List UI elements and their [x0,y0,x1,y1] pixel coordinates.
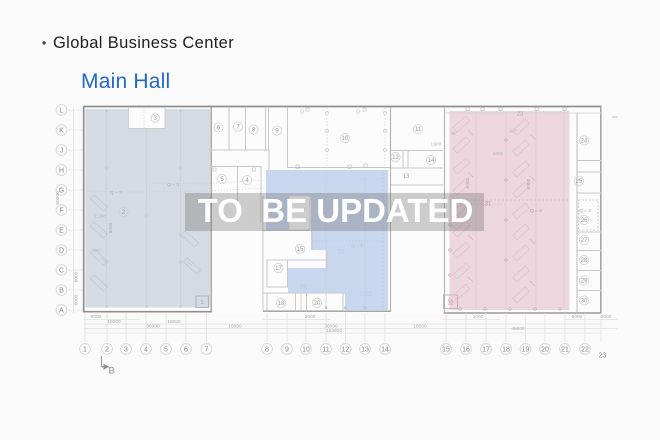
svg-text:17: 17 [482,347,490,354]
svg-text:21: 21 [561,347,569,354]
svg-text:H: H [59,168,64,175]
svg-text:28: 28 [581,258,588,264]
svg-text:18000: 18000 [107,319,121,325]
svg-text:27: 27 [581,238,588,244]
svg-text:14: 14 [381,347,389,354]
svg-text:19: 19 [299,284,307,291]
svg-text:L: L [60,108,64,115]
svg-text:18000: 18000 [228,323,242,329]
svg-text:9: 9 [285,347,289,354]
svg-text:17: 17 [275,266,282,272]
svg-text:6000: 6000 [91,314,102,320]
svg-text:Q = 3: Q = 3 [579,208,591,214]
svg-text:10: 10 [302,347,310,354]
svg-text:36000: 36000 [146,323,160,329]
svg-text:1000: 1000 [473,314,484,320]
svg-text:18000: 18000 [413,323,427,329]
svg-text:10: 10 [342,136,349,142]
svg-text:4: 4 [144,347,148,354]
svg-text:A: A [59,308,64,315]
svg-text:2000: 2000 [305,314,316,320]
svg-text:25: 25 [576,179,583,185]
svg-text:J: J [60,148,64,155]
svg-text:16: 16 [462,347,470,354]
svg-text:9000: 9000 [108,222,114,233]
svg-text:7: 7 [205,347,209,354]
svg-text:3000: 3000 [601,314,612,320]
svg-text:21: 21 [337,249,345,256]
svg-text:45000: 45000 [511,326,525,332]
svg-text:20: 20 [541,347,549,354]
svg-text:D: D [59,248,64,255]
svg-text:23: 23 [517,112,523,118]
svg-text:1900: 1900 [493,151,504,157]
svg-text:6000: 6000 [572,314,583,320]
svg-text:23: 23 [599,353,607,360]
svg-text:3: 3 [124,347,128,354]
svg-text:31: 31 [485,202,492,208]
svg-text:8: 8 [265,347,269,354]
svg-text:C: C [59,268,64,275]
svg-text:22: 22 [581,347,589,354]
svg-text:5: 5 [164,347,168,354]
svg-text:B: B [109,366,115,377]
svg-text:F: F [59,208,63,215]
svg-text:1: 1 [83,347,87,354]
svg-text:153600: 153600 [326,328,342,334]
svg-text:Q = 3: Q = 3 [351,243,363,249]
svg-text:12: 12 [392,155,399,161]
svg-text:6: 6 [184,347,188,354]
svg-text:30: 30 [581,299,588,305]
svg-text:11: 11 [415,127,422,133]
svg-text:6000: 6000 [74,271,80,282]
svg-text:22: 22 [364,291,372,298]
svg-text:13: 13 [361,347,369,354]
svg-text:29: 29 [581,279,588,285]
svg-text:1900: 1900 [431,142,442,148]
svg-text:19: 19 [522,347,530,354]
svg-text:6000: 6000 [74,294,80,305]
svg-text:18: 18 [502,347,510,354]
svg-text:60000: 60000 [55,191,61,205]
svg-text:K: K [59,128,64,135]
svg-text:Q + 3: Q + 3 [167,182,179,188]
svg-text:Q = 3: Q = 3 [530,208,542,214]
svg-text:20: 20 [314,301,321,307]
svg-text:Q + 3: Q + 3 [110,190,122,196]
svg-text:12: 12 [342,347,350,354]
svg-text:1: 1 [200,300,203,306]
svg-text:E: E [59,228,64,235]
svg-text:14: 14 [428,158,435,164]
svg-text:11: 11 [322,347,329,354]
svg-text:2: 2 [105,347,109,354]
svg-text:2.190: 2.190 [94,214,106,220]
svg-text:15: 15 [442,347,450,354]
svg-text:15: 15 [297,247,304,253]
svg-text:B: B [59,288,64,295]
svg-text:18: 18 [278,301,285,307]
svg-text:18000: 18000 [167,319,181,325]
svg-text:13: 13 [403,174,410,180]
svg-text:45°: 45° [450,131,457,137]
svg-text:24: 24 [581,139,588,145]
svg-text:26: 26 [581,218,588,224]
